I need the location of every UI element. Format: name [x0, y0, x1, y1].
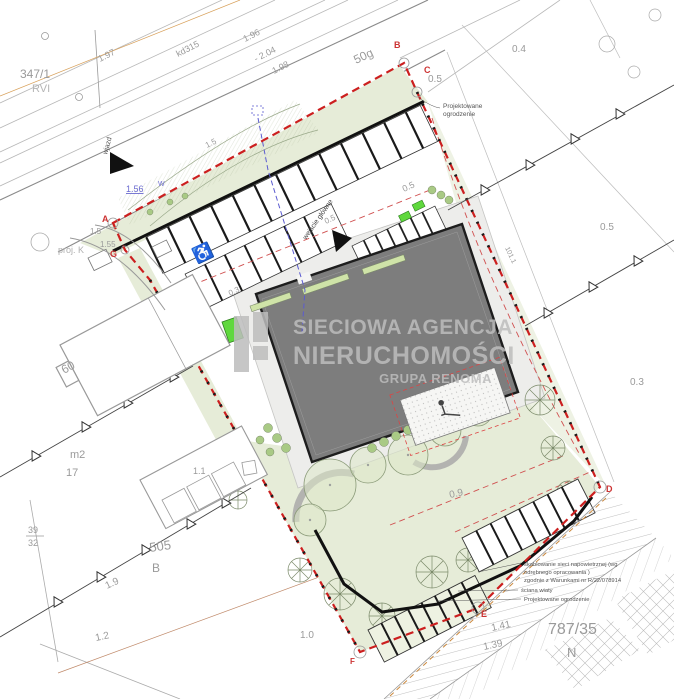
- house-17-label: 17: [66, 467, 78, 479]
- dim-198: 1.98: [270, 59, 290, 76]
- parcel-787-label: 787/35: [548, 621, 597, 638]
- annotation-fence-bottom-label: Projektowane ogrodzenie: [524, 597, 589, 603]
- annotation-wall-label: ściana wiaty: [521, 588, 553, 594]
- parcel-505-label: 505: [148, 537, 172, 555]
- annotation-cable-line2: odrębnego opracowania ): [524, 570, 590, 576]
- proj-k-label: proj. K: [58, 245, 84, 255]
- dim-05-right: 0.5: [600, 222, 614, 233]
- watermark-line1: SIECIOWA AGENCJA: [293, 316, 513, 339]
- dim-kd315: kd315: [174, 39, 200, 59]
- dim-204: - 2.04: [252, 44, 277, 63]
- neighbour-house-17: [140, 426, 267, 529]
- parcel-347-label: 347/1: [20, 67, 50, 81]
- parcel-787-n-label: N: [567, 645, 576, 660]
- frac-32: 32: [28, 538, 38, 548]
- dim-12: 1.2: [94, 630, 110, 644]
- dim-1011: 101.1: [503, 246, 517, 265]
- corner-b: B: [394, 40, 401, 50]
- annotation-fence-top-line2: ogrodzenie: [443, 111, 476, 118]
- annotation-cable-line1: skablowanie sieci napowietrznej (wg: [524, 562, 617, 568]
- site-plan-drawing: ♿ W: [0, 0, 674, 699]
- corner-d: D: [606, 484, 613, 494]
- parcel-rvi-label: RVI: [32, 83, 50, 95]
- corner-f: F: [350, 657, 355, 666]
- dim-196: 1.96: [241, 27, 261, 44]
- dim-05-top: 0.5: [428, 74, 442, 85]
- parcel-50g-label: 50g: [351, 46, 375, 67]
- frac-39: 39: [28, 525, 38, 535]
- dim-156: 1.56: [126, 184, 144, 194]
- svg-text:W: W: [158, 181, 165, 188]
- dim-11: 1.1: [193, 466, 206, 476]
- corner-g: G: [110, 249, 117, 259]
- dim-05-mid: 0.5: [401, 179, 417, 193]
- corner-e: E: [481, 609, 487, 619]
- green-marker-2: [412, 200, 425, 211]
- dim-15-left: 1.5: [90, 227, 102, 236]
- annotation-fence-top: Projektowane ogrodzenie: [419, 98, 483, 118]
- house-m2-label: m2: [70, 449, 85, 461]
- entry-arrow: [110, 152, 134, 174]
- corner-c: C: [424, 65, 431, 75]
- dim-03-right: 0.3: [630, 377, 644, 388]
- watermark-line2: NIERUCHOMOŚCI: [293, 340, 515, 370]
- dim-10: 1.0: [300, 630, 314, 641]
- dim-19: 1.9: [104, 576, 122, 592]
- watermark-line3: GRUPA RENOMA: [379, 371, 492, 386]
- dim-155: 1.55: [100, 240, 116, 249]
- corner-a: A: [102, 214, 109, 224]
- parcel-505-b-label: B: [152, 561, 160, 575]
- site-plan-image: ♿ W: [0, 0, 674, 699]
- dim-197: 1.97: [96, 47, 116, 64]
- annotation-cable-line3: zgodnie z Warunkami nr R/22/078914: [524, 578, 622, 584]
- annotation-fence-top-line1: Projektowane: [443, 103, 483, 110]
- dim-04: 0.4: [512, 44, 526, 55]
